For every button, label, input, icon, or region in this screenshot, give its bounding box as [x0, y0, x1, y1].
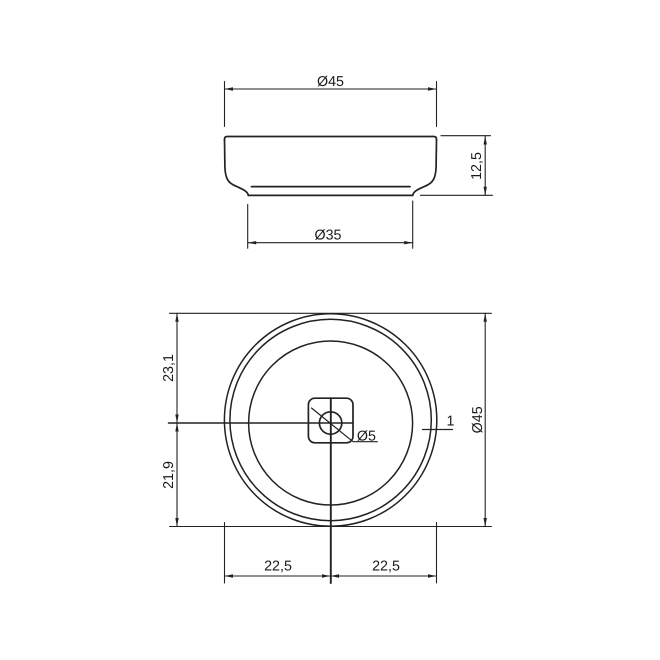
svg-text:Ø35: Ø35	[314, 228, 341, 244]
svg-text:Ø5: Ø5	[357, 428, 376, 444]
svg-text:22,5: 22,5	[372, 559, 400, 575]
svg-text:Ø45: Ø45	[317, 74, 344, 90]
svg-text:21,9: 21,9	[161, 461, 177, 489]
svg-text:12,5: 12,5	[469, 152, 485, 180]
svg-text:23,1: 23,1	[161, 354, 177, 382]
svg-text:1: 1	[447, 414, 455, 430]
svg-text:Ø45: Ø45	[470, 406, 486, 433]
svg-text:22,5: 22,5	[264, 559, 292, 575]
